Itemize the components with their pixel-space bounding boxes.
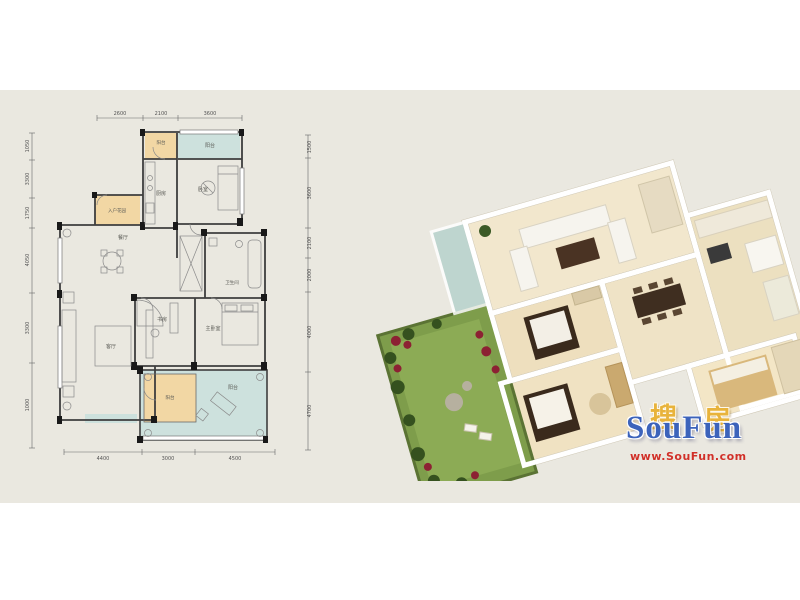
label-service-balcony: 阳台 (157, 139, 166, 146)
dim-right-1: 1500 (307, 141, 313, 154)
label-top-balcony: 阳台 (205, 142, 215, 149)
dim-bottom-1: 4400 (97, 456, 110, 462)
dim-left-3: 1750 (25, 207, 31, 220)
room-service-balcony (145, 133, 177, 159)
label-study: 书房 (157, 316, 167, 323)
label-large-balcony: 阳台 (228, 384, 238, 391)
living-bay-window (85, 414, 137, 423)
dim-right-3: 2100 (307, 237, 313, 250)
label-kitchen: 厨房 (156, 190, 166, 197)
label-bath: 卫生间 (225, 279, 239, 286)
dim-bottom-2: 3000 (162, 456, 175, 462)
label-living: 客厅 (106, 343, 116, 350)
dim-right-5: 4000 (307, 326, 313, 339)
dim-top-2: 2100 (155, 111, 168, 117)
label-entry-garden: 入户花园 (108, 207, 126, 214)
dim-right-6: 4700 (307, 405, 313, 418)
label-bedroom: 卧室 (198, 186, 208, 193)
dim-top-3: 3600 (204, 111, 217, 117)
dim-left-2: 3300 (25, 173, 31, 186)
floorplan-2d: 阳台 阳台 厨房 卧室 入户花园 餐厅 卫生间 主卧室 书房 客厅 阳台 阳台 (15, 98, 335, 470)
dim-left-6: 1000 (25, 399, 31, 412)
label-small-balcony: 阳台 (166, 394, 175, 401)
dim-left-4: 4050 (25, 254, 31, 267)
watermark-brand-text: SouFun (626, 410, 742, 447)
dim-bottom-3: 4500 (229, 456, 242, 462)
dim-right-2: 3600 (307, 187, 313, 200)
dim-right-4: 2000 (307, 269, 313, 282)
dim-top-1: 2600 (114, 111, 127, 117)
label-master: 主卧室 (205, 325, 220, 332)
watermark-url-text: www.SouFun.com (630, 450, 747, 463)
dim-left-5: 3300 (25, 322, 31, 335)
dim-left-1: 1050 (25, 140, 31, 153)
label-dining: 餐厅 (118, 234, 128, 241)
soufun-watermark: 搜 房 SouFun www.SouFun.com (620, 394, 800, 472)
